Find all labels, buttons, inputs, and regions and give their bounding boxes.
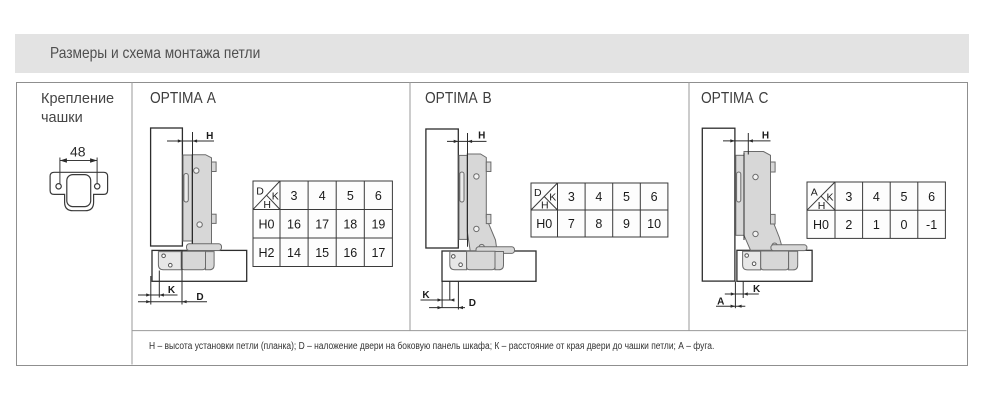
svg-text:K: K [422, 290, 430, 301]
svg-text:H0: H0 [813, 218, 829, 232]
svg-text:16: 16 [287, 217, 301, 231]
svg-text:A: A [811, 187, 818, 199]
svg-text:6: 6 [375, 189, 382, 203]
svg-text:4: 4 [595, 190, 602, 204]
svg-text:K: K [826, 191, 833, 203]
svg-text:5: 5 [901, 190, 908, 204]
svg-text:A: A [717, 296, 724, 307]
svg-text:5: 5 [347, 189, 354, 203]
svg-text:H2: H2 [259, 246, 275, 260]
svg-text:H0: H0 [259, 217, 275, 231]
svg-text:H: H [263, 199, 271, 211]
svg-text:K: K [272, 190, 279, 202]
svg-text:17: 17 [315, 217, 329, 231]
svg-text:16: 16 [343, 246, 357, 260]
svg-text:18: 18 [343, 217, 357, 231]
svg-text:48: 48 [70, 144, 86, 160]
svg-text:1: 1 [873, 218, 880, 232]
svg-text:D: D [196, 292, 203, 303]
svg-text:3: 3 [568, 190, 575, 204]
svg-text:3: 3 [291, 189, 298, 203]
svg-text:H: H [762, 130, 769, 141]
svg-text:H: H [478, 131, 485, 142]
svg-text:3: 3 [845, 190, 852, 204]
svg-text:H0: H0 [536, 217, 552, 231]
svg-text:K: K [753, 284, 761, 295]
svg-text:4: 4 [319, 189, 326, 203]
svg-text:10: 10 [647, 217, 661, 231]
svg-text:K: K [549, 192, 556, 204]
svg-text:7: 7 [568, 217, 575, 231]
svg-text:14: 14 [287, 246, 301, 260]
svg-text:K: K [168, 285, 176, 296]
svg-text:9: 9 [623, 217, 630, 231]
svg-text:-1: -1 [926, 218, 937, 232]
svg-text:D: D [469, 298, 476, 309]
svg-text:D: D [534, 187, 542, 199]
svg-text:6: 6 [651, 190, 658, 204]
svg-text:6: 6 [928, 190, 935, 204]
svg-text:H: H [206, 131, 213, 142]
svg-text:19: 19 [371, 217, 385, 231]
svg-text:15: 15 [315, 246, 329, 260]
svg-text:H: H [541, 200, 549, 212]
svg-text:4: 4 [873, 190, 880, 204]
svg-text:8: 8 [595, 217, 602, 231]
svg-text:2: 2 [845, 218, 852, 232]
svg-text:5: 5 [623, 190, 630, 204]
svg-text:0: 0 [901, 218, 908, 232]
svg-text:H: H [818, 200, 826, 212]
svg-text:17: 17 [371, 246, 385, 260]
svg-text:D: D [256, 186, 264, 198]
